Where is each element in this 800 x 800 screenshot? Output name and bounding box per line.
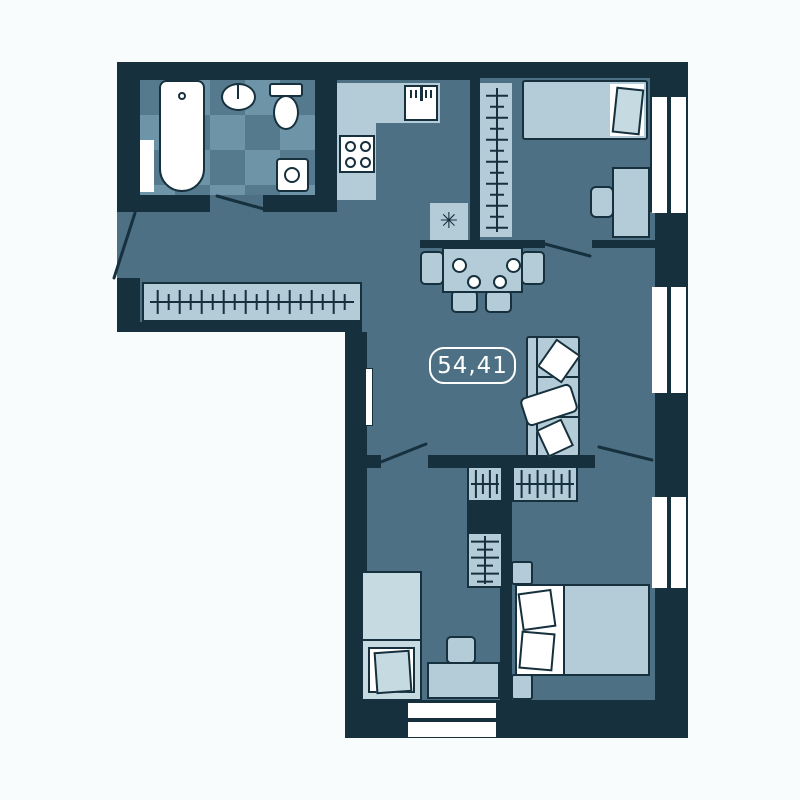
blanket-fold-line bbox=[363, 639, 420, 641]
burner-icon bbox=[345, 157, 356, 168]
kitchen-sink bbox=[404, 85, 438, 121]
dining-chair-left bbox=[420, 251, 444, 285]
bed-double bbox=[515, 584, 650, 676]
pillow bbox=[518, 589, 557, 631]
water-heater: ✳ bbox=[430, 203, 468, 240]
hall-mirror bbox=[365, 368, 373, 426]
hall-wardrobe bbox=[142, 282, 362, 322]
plate-icon bbox=[506, 258, 521, 273]
kitchen-bedroom-wall bbox=[470, 62, 480, 248]
burner-icon bbox=[345, 141, 356, 152]
pillow bbox=[518, 631, 555, 672]
sofa-blanket bbox=[519, 382, 580, 427]
window-bedroom-top bbox=[652, 97, 686, 213]
dining-chair-bottom-left bbox=[451, 290, 478, 313]
window-bedroom-right bbox=[652, 497, 686, 588]
sofa bbox=[526, 336, 580, 457]
wardrobe-small bbox=[467, 466, 503, 502]
nightstand-bottom bbox=[511, 674, 533, 700]
sofa-pillow bbox=[536, 418, 574, 457]
window-living bbox=[652, 287, 686, 393]
bed-double-blanket bbox=[563, 586, 648, 674]
bedroom-top-wall-right bbox=[592, 240, 655, 248]
kitchen-faucet-icon bbox=[420, 87, 423, 101]
bath-niche bbox=[140, 140, 154, 192]
entrance-opening bbox=[117, 212, 140, 278]
plate-icon bbox=[452, 258, 467, 273]
bathtub-drain-icon bbox=[178, 92, 186, 100]
wall-niche-box bbox=[467, 502, 502, 532]
bedroom-left-wall-stub bbox=[367, 455, 381, 468]
bed-top bbox=[522, 80, 648, 140]
window-bedroom-bottom bbox=[408, 703, 496, 737]
wardrobe-wide bbox=[512, 466, 578, 502]
water-heater-icon: ✳ bbox=[440, 209, 458, 234]
dining-table bbox=[442, 247, 523, 293]
washing-machine-door-icon bbox=[284, 167, 300, 183]
floor-plan: ✳ 54,41 bbox=[0, 0, 800, 800]
pillow bbox=[374, 650, 413, 694]
desk-top bbox=[612, 167, 650, 238]
sink-faucet-icon bbox=[237, 84, 239, 99]
burner-icon bbox=[360, 141, 371, 152]
chair-top bbox=[590, 186, 614, 218]
burner-icon bbox=[360, 157, 371, 168]
chair-bottom bbox=[446, 636, 476, 664]
dining-chair-right bbox=[521, 251, 545, 285]
plate-icon bbox=[467, 275, 481, 289]
shelf-unit bbox=[467, 532, 503, 588]
nightstand-top bbox=[511, 561, 533, 585]
area-label: 54,41 bbox=[437, 353, 508, 379]
desk-bottom bbox=[427, 662, 500, 699]
dining-chair-bottom-right bbox=[485, 290, 512, 313]
closet-top bbox=[480, 83, 512, 237]
area-badge: 54,41 bbox=[429, 347, 516, 384]
toilet-bowl bbox=[273, 95, 299, 130]
hall-south-wall bbox=[117, 322, 362, 332]
stove bbox=[339, 135, 375, 173]
bathroom-door-opening bbox=[210, 195, 263, 212]
bed-left bbox=[361, 571, 422, 701]
pillow bbox=[612, 87, 645, 136]
plate-icon bbox=[493, 275, 507, 289]
